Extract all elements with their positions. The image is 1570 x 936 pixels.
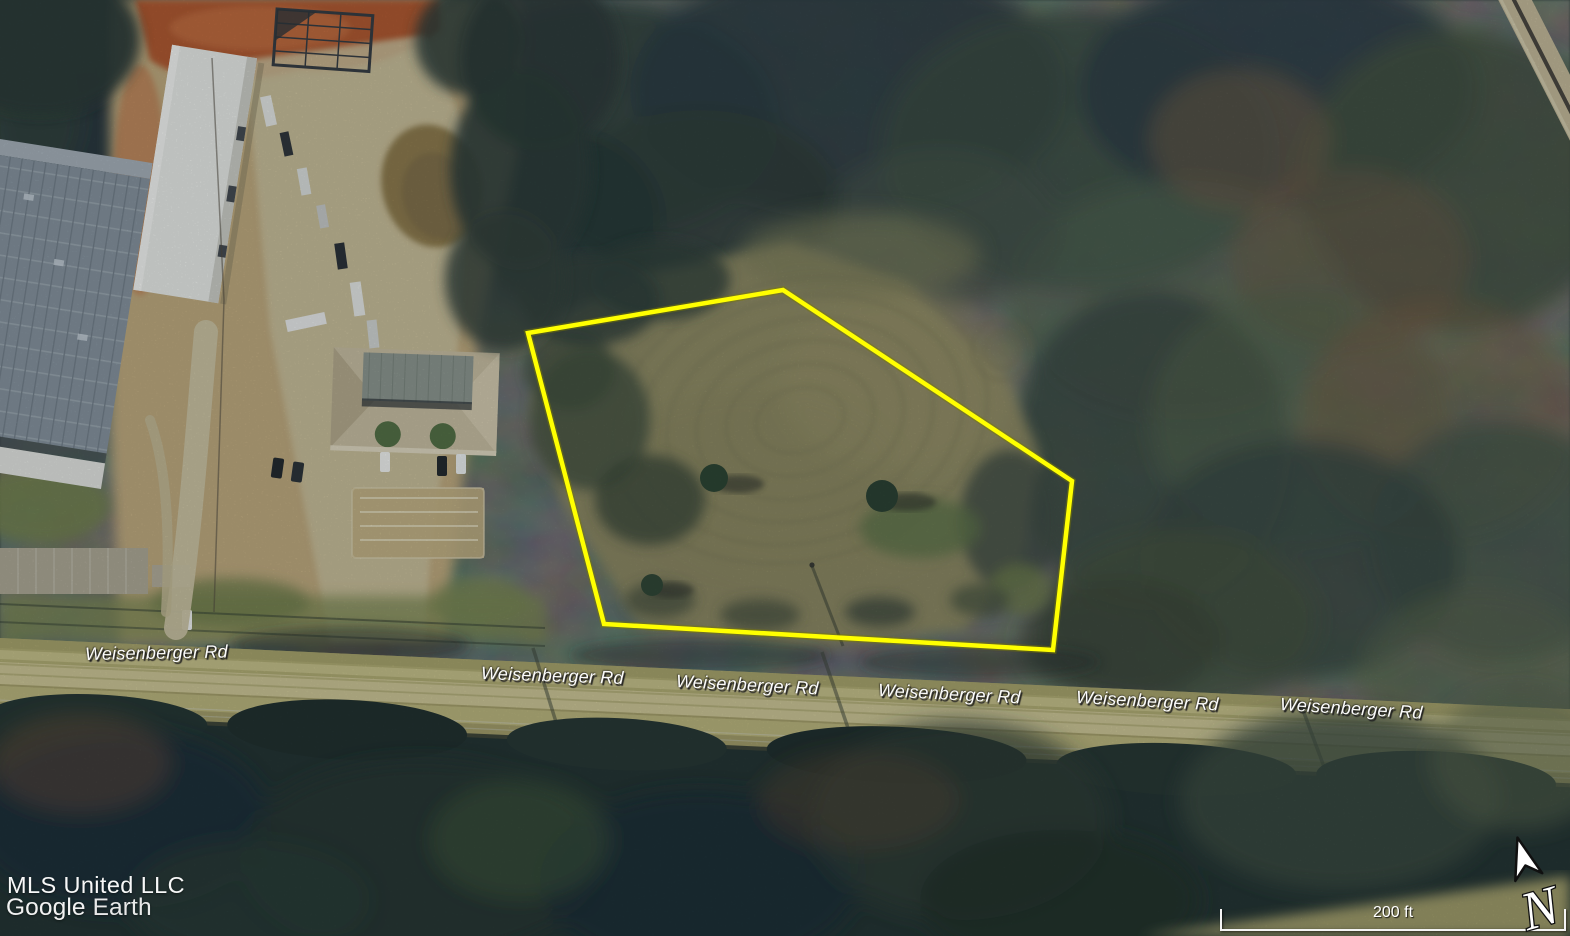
north-letter: N (1513, 874, 1568, 936)
aerial-imagery (0, 0, 1570, 936)
map-viewport[interactable]: Weisenberger RdWeisenberger RdWeisenberg… (0, 0, 1570, 936)
google-earth-logo: Google Earth (6, 894, 152, 922)
color-tint (0, 0, 1570, 936)
google-wordmark: Google (6, 894, 86, 922)
earth-wordmark: Earth (93, 894, 152, 922)
